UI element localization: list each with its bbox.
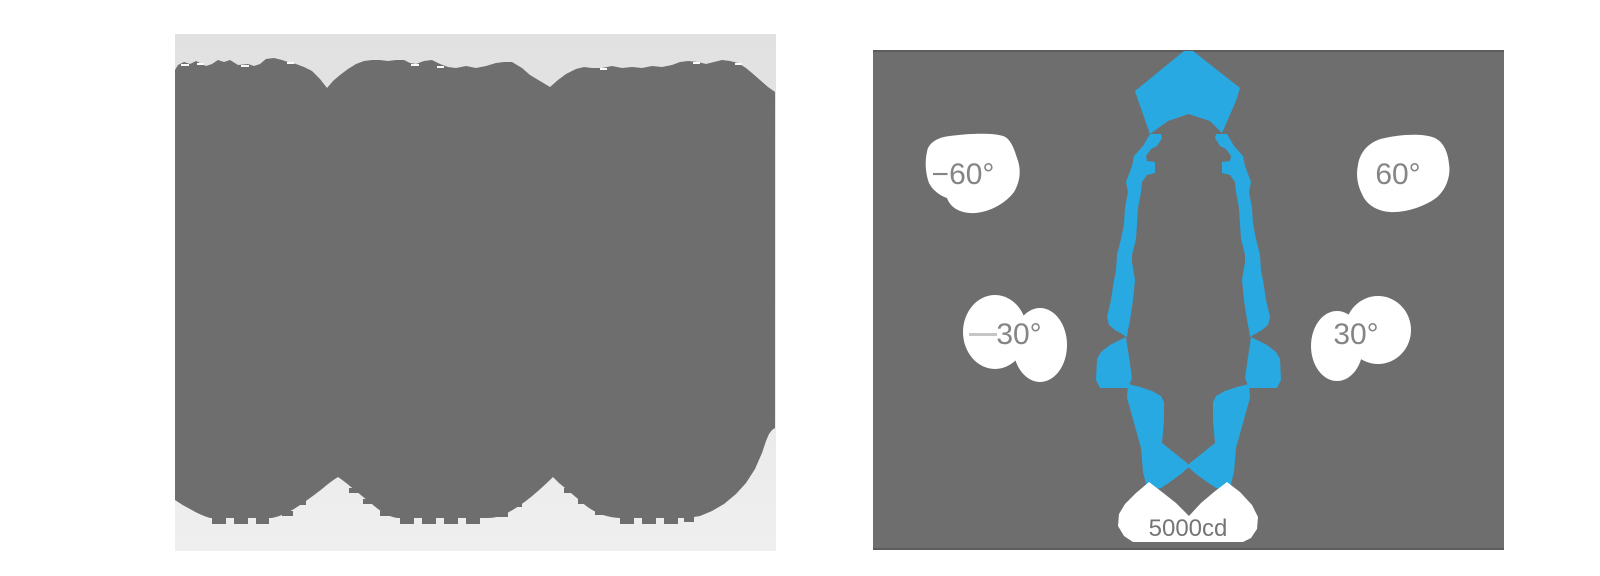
svg-text:30°: 30°: [1333, 318, 1378, 351]
svg-text:30°: 30°: [996, 318, 1041, 351]
svg-text:60°: 60°: [1375, 158, 1420, 191]
svg-text:5000cd: 5000cd: [1149, 515, 1228, 542]
svg-text:−60°: −60°: [932, 158, 995, 191]
